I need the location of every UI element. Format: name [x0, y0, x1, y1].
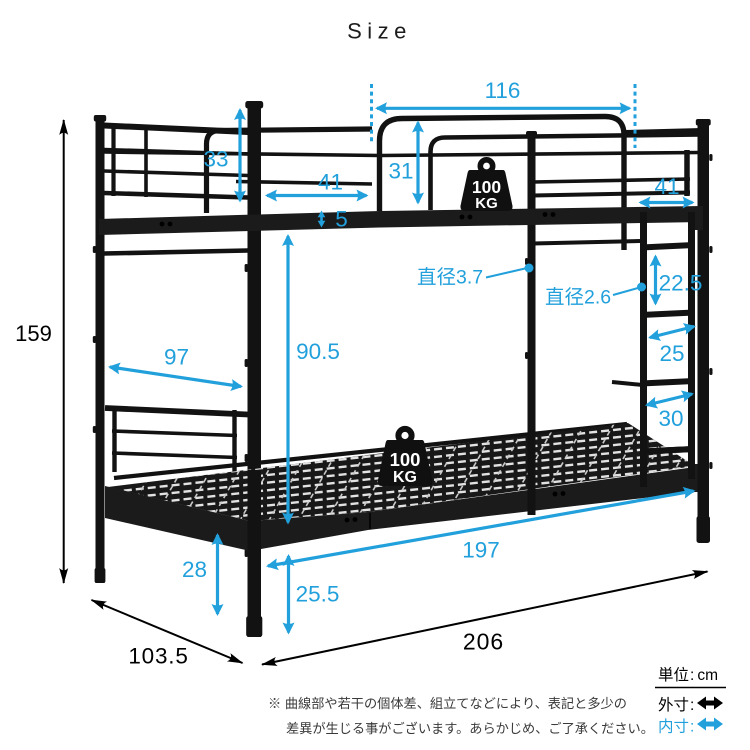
- svg-text:25: 25: [659, 341, 684, 366]
- svg-text:41: 41: [654, 174, 679, 199]
- svg-text:直径2.6: 直径2.6: [545, 287, 611, 309]
- svg-text:90.5: 90.5: [296, 339, 340, 364]
- svg-text:25.5: 25.5: [296, 582, 340, 607]
- svg-text:116: 116: [485, 78, 521, 103]
- svg-text:97: 97: [164, 345, 189, 370]
- svg-text:22.5: 22.5: [659, 271, 703, 296]
- svg-text:外寸:: 外寸:: [658, 696, 694, 714]
- svg-text:41: 41: [318, 170, 343, 195]
- svg-text:差異が生じる事がございます。あらかじめ、ご了承ください。: 差異が生じる事がございます。あらかじめ、ご了承ください。: [286, 720, 654, 736]
- svg-text:31: 31: [388, 159, 413, 184]
- svg-text:103.5: 103.5: [128, 644, 188, 669]
- svg-text:直径3.7: 直径3.7: [417, 267, 483, 289]
- svg-text:159: 159: [15, 321, 52, 346]
- svg-text:※ 曲線部や若干の個体差、組立てなどにより、表記と多少の: ※ 曲線部や若干の個体差、組立てなどにより、表記と多少の: [268, 695, 627, 711]
- svg-text:100: 100: [390, 449, 421, 470]
- svg-text:5: 5: [335, 207, 348, 232]
- svg-text:KG: KG: [475, 195, 498, 212]
- svg-text:KG: KG: [393, 469, 417, 486]
- svg-text:30: 30: [658, 406, 683, 431]
- svg-text:206: 206: [463, 629, 504, 655]
- svg-text:内寸:: 内寸:: [658, 718, 694, 736]
- svg-text:100: 100: [472, 177, 501, 197]
- svg-text:28: 28: [182, 557, 207, 582]
- svg-text:単位:cm: 単位:cm: [658, 666, 718, 684]
- svg-text:197: 197: [462, 538, 500, 563]
- svg-text:33: 33: [203, 147, 228, 172]
- svg-text:Size: Size: [347, 19, 412, 44]
